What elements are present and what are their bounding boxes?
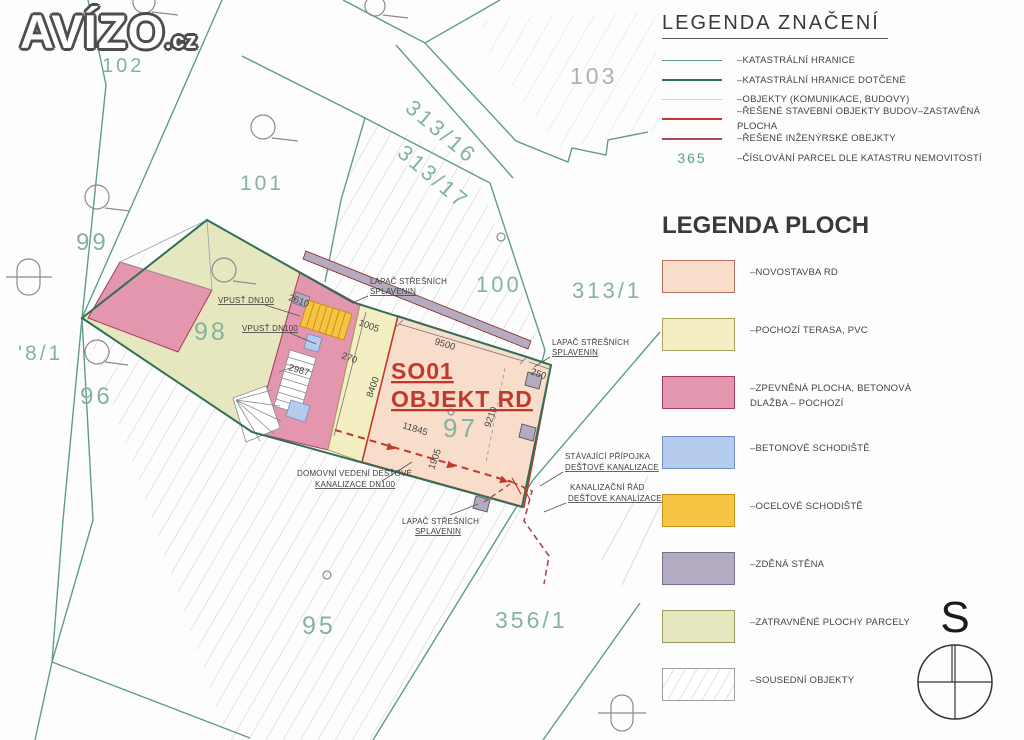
parcel-number-95: 95 — [302, 612, 336, 640]
parcel-number-98-1: '8/1 — [18, 342, 63, 365]
parcel-number-97: 97 — [443, 413, 478, 443]
parcel-number-100: 100 — [476, 272, 522, 297]
legend-row: –KATASTRÁLNÍ HRANICE — [662, 51, 1018, 71]
area-swatch — [662, 436, 735, 469]
ann-kanalizacni-1: KANALIZAČNÍ ŘÁD — [570, 483, 645, 492]
legend-row-label: –ŘEŠENÉ INŽENÝRSKÉ OBEJKTY — [737, 131, 896, 146]
well-symbol — [251, 115, 275, 139]
parcel-number-102: 102 — [102, 55, 144, 77]
legend-row-label: –BETONOVÉ SCHODIŠTĚ — [750, 436, 870, 456]
boundary-line — [52, 318, 93, 662]
ann-kanalizacni-2: DEŠŤOVÉ KANALIZACE — [568, 494, 662, 503]
line-swatch — [662, 60, 722, 61]
legend-row-label: –KATASTRÁLNÍ HRANICE DOTČENÉ — [737, 73, 906, 88]
building-type: OBJEKT RD — [391, 386, 533, 412]
parcel-number-sample: 365 — [662, 150, 722, 166]
legend-row: 365 –ČÍSLOVÁNÍ PARCEL DLE KATASTRU NEMOV… — [662, 149, 1018, 169]
area-swatch — [662, 552, 735, 585]
parcel-number-99: 99 — [76, 229, 109, 256]
parcel-number-98: 98 — [194, 318, 228, 346]
boundary-line — [35, 662, 52, 740]
boundary-line — [242, 56, 365, 118]
well-symbol — [85, 185, 109, 209]
ann-domovni-2: KANALIZACE DN100 — [315, 480, 395, 489]
legend-row-label: –NOVOSTAVBA RD — [750, 260, 838, 280]
ann-lapac-top-2: SPLAVENIN — [370, 287, 416, 296]
legend-row: –ZPEVNĚNÁ PLOCHA, BETONOVÁ DLAŽBA – POCH… — [662, 376, 1018, 411]
ann-vpust-1: VPUSŤ DN100 — [218, 296, 274, 305]
ann-domovni-1: DOMOVNÍ VEDENÍ DEŠŤOVÉ — [297, 469, 412, 478]
building-code: SO01 — [391, 358, 454, 384]
logo-text: AVÍZO — [20, 5, 165, 58]
legend-row-label: –ŘEŠENÉ STAVEBNÍ OBJEKTY BUDOV–ZASTAVĚNÁ… — [737, 104, 1018, 134]
ann-stavajici-1: STÁVAJÍCÍ PŘÍPOJKA — [565, 452, 651, 461]
legend-row-label: –POCHOZÍ TERASA, PVC — [750, 318, 868, 338]
line-swatch — [662, 138, 722, 140]
stray-line — [622, 505, 660, 585]
legend-areas: LEGENDA PLOCH –NOVOSTAVBA RD –POCHOZÍ TE… — [662, 192, 1018, 726]
ann-stavajici-2: DEŠŤOVÉ KANALIZACE — [565, 463, 659, 472]
legend-row: –ZATRAVNĚNÉ PLOCHY PARCELY — [662, 610, 1018, 643]
avizo-logo: AVÍZO.cz — [20, 8, 198, 55]
area-swatch — [662, 376, 735, 409]
legend-symbols-title: LEGENDA ZNAČENÍ — [662, 12, 888, 39]
ann-lapac-bottom-2: SPLAVENIN — [415, 527, 461, 536]
area-swatch — [662, 260, 735, 293]
boundary-line — [343, 0, 500, 43]
legend-label-line1: –ZPEVNĚNÁ PLOCHA, BETONOVÁ — [750, 381, 911, 396]
legend-row-label: –KATASTRÁLNÍ HRANICE — [737, 53, 855, 68]
area-swatch — [662, 318, 735, 351]
legend-row-label: –SOUSEDNÍ OBJEKTY — [750, 668, 854, 688]
parcel-number-101: 101 — [240, 172, 284, 195]
area-swatch — [662, 610, 735, 643]
legend-row: –NOVOSTAVBA RD — [662, 260, 1018, 293]
logo-tld: .cz — [165, 28, 197, 53]
legend-row-label: –ZDĚNÁ STĚNA — [750, 552, 824, 572]
legend-row: –KATASTRÁLNÍ HRANICE DOTČENÉ — [662, 71, 1018, 91]
legend-label-line2: DLAŽBA – POCHOZÍ — [750, 396, 911, 411]
well-symbol — [365, 0, 385, 16]
site-plan-page: 102 101 103 313/16 313/17 99 98 '8/1 96 … — [0, 0, 1024, 740]
legend-row-label: –ZATRAVNĚNÉ PLOCHY PARCELY — [750, 610, 910, 630]
ann-lapac-top-1: LAPAČ STŘEŠNÍCH — [370, 277, 447, 286]
area-swatch — [662, 668, 735, 701]
ann-lapac-right-1: LAPAČ STŘEŠNÍCH — [552, 338, 629, 347]
line-swatch — [662, 99, 722, 100]
ann-lapac-bottom-1: LAPAČ STŘEŠNÍCH — [402, 517, 479, 526]
legend-row: –BETONOVÉ SCHODIŠTĚ — [662, 436, 1018, 469]
legend-areas-title: LEGENDA PLOCH — [662, 212, 1018, 240]
ann-vpust-2: VPUSŤ DN100 — [242, 324, 298, 333]
line-swatch — [662, 79, 722, 81]
legend-row: –SOUSEDNÍ OBJEKTY — [662, 668, 1018, 701]
ann-lapac-right-2: SPLAVENIN — [552, 348, 598, 357]
legend-symbols: LEGENDA ZNAČENÍ –KATASTRÁLNÍ HRANICE –KA… — [662, 12, 1018, 168]
area-swatch — [662, 494, 735, 527]
legend-row: –ZDĚNÁ STĚNA — [662, 552, 1018, 585]
parcel-number-313-1: 313/1 — [572, 278, 642, 303]
legend-row-label: –ČÍSLOVÁNÍ PARCEL DLE KATASTRU NEMOVITOS… — [737, 151, 982, 166]
parcel-number-356-1: 356/1 — [495, 607, 568, 633]
legend-row: –OCELOVÉ SCHODIŠTĚ — [662, 494, 1018, 527]
legend-row: –ŘEŠENÉ STAVEBNÍ OBJEKTY BUDOV–ZASTAVĚNÁ… — [662, 110, 1018, 130]
line-swatch — [662, 118, 722, 120]
parcel-number-103: 103 — [570, 63, 617, 89]
legend-row-label: –ZPEVNĚNÁ PLOCHA, BETONOVÁ DLAŽBA – POCH… — [750, 376, 911, 411]
legend-row-label: –OCELOVÉ SCHODIŠTĚ — [750, 494, 863, 514]
legend-row: –POCHOZÍ TERASA, PVC — [662, 318, 1018, 351]
parcel-number-96: 96 — [80, 383, 113, 410]
